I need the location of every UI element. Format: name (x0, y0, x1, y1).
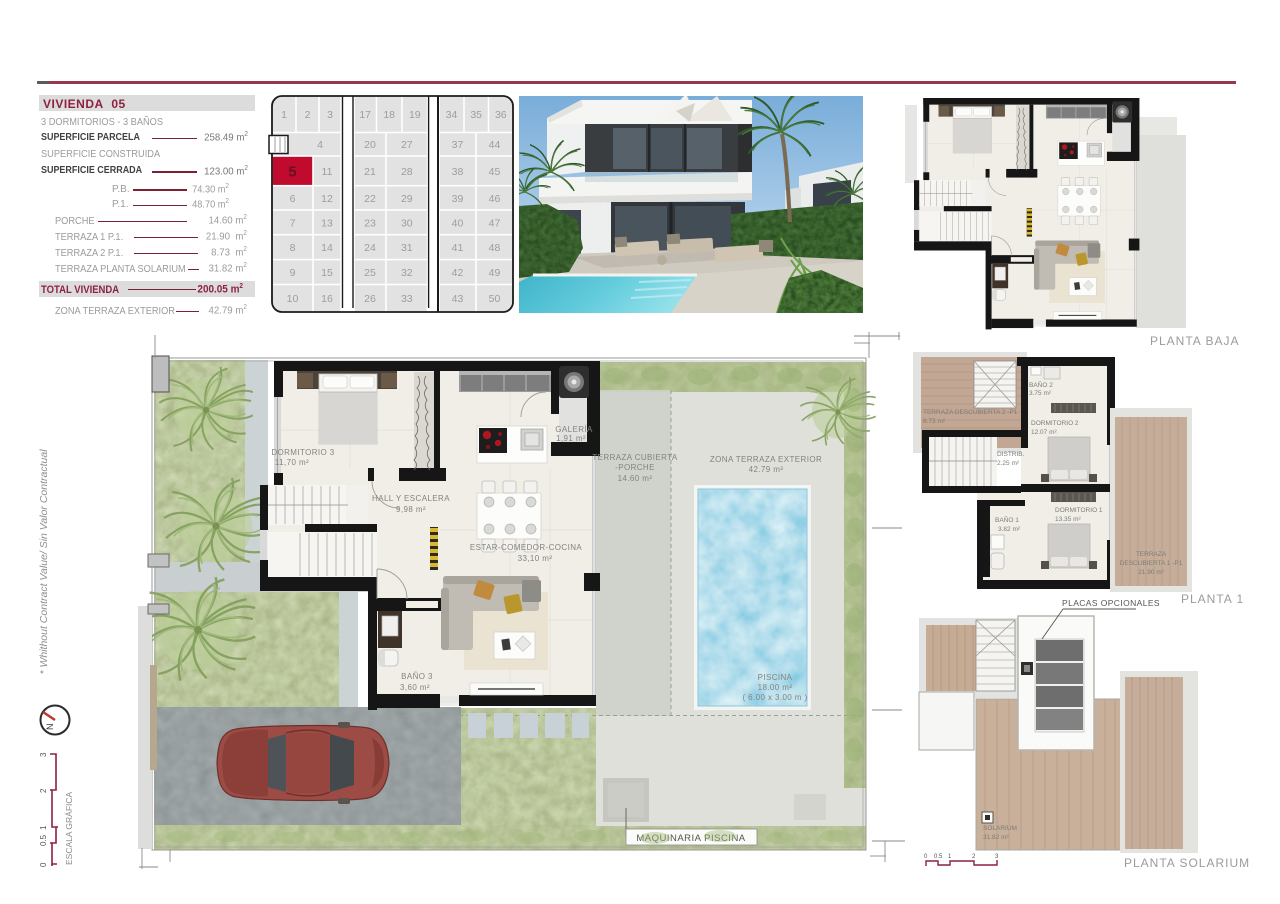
svg-text:45: 45 (489, 166, 501, 178)
svg-text:5: 5 (288, 163, 296, 180)
svg-text:DORMITORIO 1: DORMITORIO 1 (1055, 507, 1103, 514)
svg-text:9: 9 (290, 267, 296, 279)
svg-text:49: 49 (489, 267, 501, 279)
svg-text:TERRAZA: TERRAZA (1136, 551, 1167, 558)
svg-text:35: 35 (470, 109, 482, 121)
svg-text:32: 32 (401, 267, 413, 279)
svg-text:2.25 m²: 2.25 m² (997, 460, 1020, 467)
svg-text:46: 46 (489, 193, 501, 205)
svg-text:9,98 m²: 9,98 m² (396, 505, 426, 514)
svg-text:50: 50 (489, 293, 501, 305)
svg-text:14: 14 (321, 242, 333, 254)
svg-text:20: 20 (364, 139, 376, 151)
svg-text:10: 10 (287, 293, 299, 305)
svg-text:18.00 m²: 18.00 m² (758, 683, 793, 692)
svg-text:BAÑO 2: BAÑO 2 (1029, 380, 1053, 389)
svg-text:1,91 m²: 1,91 m² (556, 434, 586, 443)
svg-text:DORMITORIO 3: DORMITORIO 3 (271, 448, 334, 457)
svg-text:14.60 m²: 14.60 m² (618, 474, 653, 483)
svg-text:3: 3 (327, 109, 333, 121)
svg-text:11,70 m²: 11,70 m² (275, 458, 309, 467)
svg-text:TERRAZA DESCUBIERTA 2 -P1: TERRAZA DESCUBIERTA 2 -P1 (923, 409, 1018, 416)
svg-text:2: 2 (305, 109, 311, 121)
svg-text:ESTAR-COMEDOR-COCINA: ESTAR-COMEDOR-COCINA (470, 543, 583, 552)
svg-text:3.82 m²: 3.82 m² (998, 526, 1021, 533)
svg-text:7: 7 (290, 217, 296, 229)
svg-text:13.35 m²: 13.35 m² (1055, 516, 1081, 523)
svg-text:12: 12 (321, 193, 333, 205)
svg-text:2: 2 (972, 854, 976, 860)
svg-text:21.90 m²: 21.90 m² (1138, 569, 1164, 576)
svg-text:33,10 m²: 33,10 m² (518, 554, 553, 563)
svg-text:15: 15 (321, 267, 333, 279)
svg-text:41: 41 (452, 242, 464, 254)
svg-text:36: 36 (495, 109, 507, 121)
svg-text:23: 23 (364, 217, 376, 229)
svg-text:38: 38 (452, 166, 464, 178)
svg-text:31.82 m²: 31.82 m² (983, 834, 1009, 841)
svg-text:29: 29 (401, 193, 413, 205)
svg-text:11: 11 (322, 166, 333, 178)
svg-text:( 6.00 x 3.00 m ): ( 6.00 x 3.00 m ) (742, 693, 807, 702)
svg-text:33: 33 (401, 293, 413, 305)
svg-text:47: 47 (489, 217, 501, 229)
svg-text:12.07 m²: 12.07 m² (1031, 429, 1057, 436)
svg-text:22: 22 (364, 193, 376, 205)
svg-text:39: 39 (452, 193, 464, 205)
svg-text:DISTRIB.: DISTRIB. (997, 451, 1025, 458)
svg-text:25: 25 (364, 267, 376, 279)
svg-text:48: 48 (489, 242, 501, 254)
svg-text:DESCUBIERTA 1 -P1: DESCUBIERTA 1 -P1 (1120, 560, 1183, 567)
svg-text:0: 0 (924, 854, 928, 860)
svg-text:18: 18 (383, 109, 395, 121)
svg-text:HALL Y ESCALERA: HALL Y ESCALERA (372, 494, 450, 503)
svg-text:26: 26 (364, 293, 376, 305)
svg-text:43: 43 (452, 293, 464, 305)
svg-text:16: 16 (321, 293, 333, 305)
svg-text:ZONA TERRAZA EXTERIOR: ZONA TERRAZA EXTERIOR (710, 455, 822, 464)
svg-text:PISCINA: PISCINA (758, 673, 793, 682)
svg-text:4: 4 (317, 139, 323, 151)
svg-text:27: 27 (401, 139, 413, 151)
svg-text:GALERÍA: GALERÍA (555, 425, 593, 434)
svg-text:13: 13 (321, 217, 333, 229)
svg-text:17: 17 (359, 109, 371, 121)
svg-text:3: 3 (995, 854, 999, 860)
svg-text:42.79 m²: 42.79 m² (749, 465, 784, 474)
svg-text:TERRAZA CUBIERTA: TERRAZA CUBIERTA (592, 453, 677, 462)
svg-text:24: 24 (364, 242, 376, 254)
svg-text:28: 28 (401, 166, 413, 178)
svg-text:44: 44 (489, 139, 501, 151)
svg-text:BAÑO 3: BAÑO 3 (401, 672, 433, 681)
svg-text:3.75 m²: 3.75 m² (1029, 390, 1052, 397)
svg-text:40: 40 (452, 217, 464, 229)
svg-text:1: 1 (948, 854, 952, 860)
svg-text:8.73 m²: 8.73 m² (923, 418, 946, 425)
svg-text:3,60 m²: 3,60 m² (400, 683, 430, 692)
svg-text:31: 31 (401, 242, 413, 254)
svg-text:8: 8 (290, 242, 296, 254)
svg-text:SOLARIUM: SOLARIUM (983, 825, 1017, 832)
svg-text:30: 30 (401, 217, 413, 229)
svg-text:-PORCHE: -PORCHE (615, 463, 655, 472)
svg-text:DORMITORIO 2: DORMITORIO 2 (1031, 420, 1079, 427)
svg-text:42: 42 (452, 267, 464, 279)
svg-text:6: 6 (290, 193, 296, 205)
svg-text:0.5: 0.5 (934, 854, 943, 860)
svg-text:21: 21 (364, 166, 376, 178)
svg-text:1: 1 (281, 109, 287, 121)
svg-text:19: 19 (409, 109, 421, 121)
svg-text:37: 37 (452, 139, 464, 151)
svg-text:BAÑO 1: BAÑO 1 (995, 515, 1019, 524)
svg-text:34: 34 (446, 109, 458, 121)
